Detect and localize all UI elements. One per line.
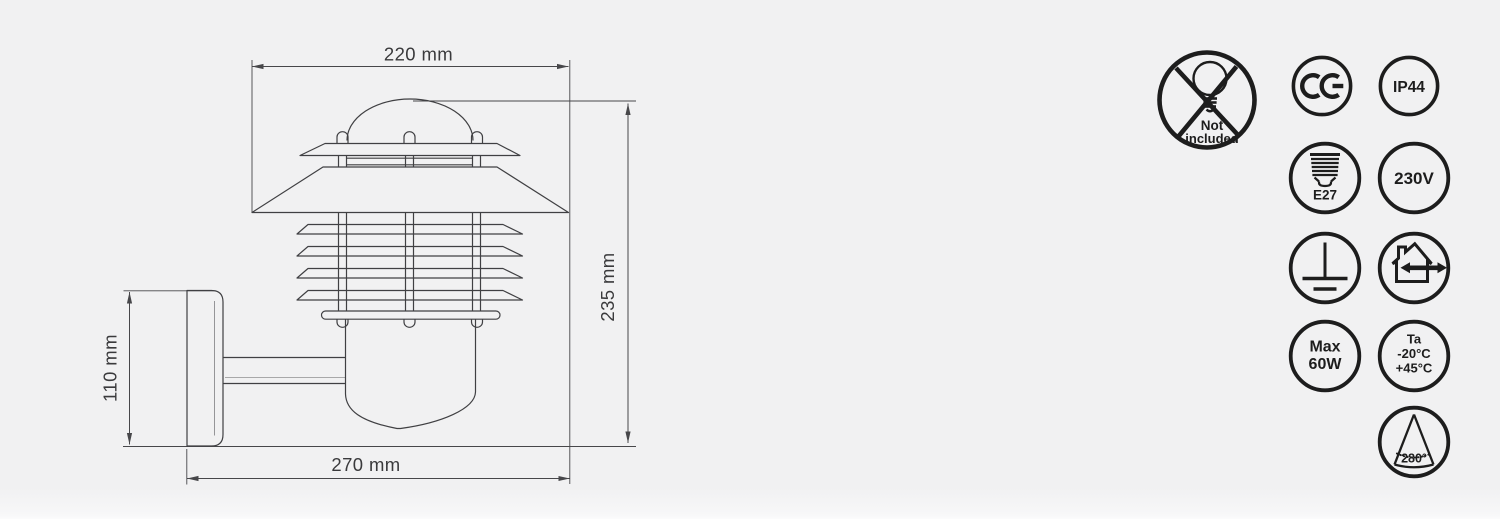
indoor-outdoor-badge bbox=[1377, 231, 1451, 305]
earth-ground-icon bbox=[1303, 243, 1348, 290]
certification-badges: Not included IP44 bbox=[0, 0, 1500, 519]
max-wattage-line2: 60W bbox=[1309, 356, 1343, 373]
earth-ground-badge bbox=[1288, 231, 1362, 305]
ip44-label: IP44 bbox=[1393, 79, 1425, 96]
ip44-badge: IP44 bbox=[1378, 55, 1440, 117]
voltage-badge: 230V bbox=[1377, 141, 1451, 215]
ambient-temperature-badge: Ta -20°C +45°C bbox=[1377, 319, 1451, 393]
ambient-temp-line3: +45°C bbox=[1396, 361, 1433, 376]
voltage-label: 230V bbox=[1394, 169, 1434, 188]
max-wattage-line1: Max bbox=[1309, 339, 1340, 356]
ambient-temp-line1: Ta bbox=[1407, 332, 1422, 347]
bulb-not-included-badge: Not included bbox=[1155, 48, 1259, 152]
max-wattage-badge: Max 60W bbox=[1288, 319, 1362, 393]
ce-mark-icon bbox=[1302, 75, 1343, 97]
beam-angle-badge: 280° bbox=[1377, 405, 1451, 479]
house-arrow-icon bbox=[1393, 244, 1448, 282]
product-spec-sheet: 220 mm 235 mm 110 mm 270 mm bbox=[0, 0, 1500, 519]
ambient-temp-line2: -20°C bbox=[1397, 346, 1431, 361]
ce-mark-badge bbox=[1291, 55, 1353, 117]
beam-angle-label: 280° bbox=[1401, 452, 1427, 466]
e27-label: E27 bbox=[1313, 188, 1337, 203]
e27-socket-badge: E27 bbox=[1288, 141, 1362, 215]
screw-base-icon bbox=[1310, 155, 1340, 187]
not-included-label-line2: included bbox=[1185, 131, 1239, 146]
